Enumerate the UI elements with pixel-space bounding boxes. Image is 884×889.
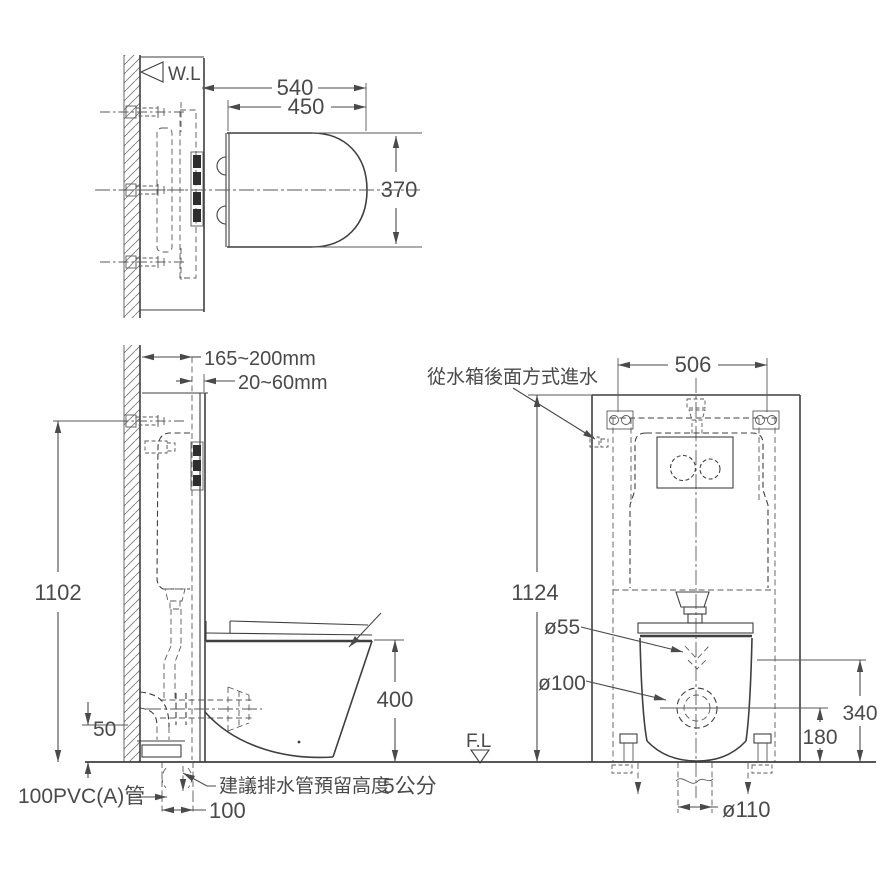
dim-180: 180 [802,708,837,762]
dim-1124: 1124 [511,395,592,762]
drain-elbow [137,692,193,796]
panel-thickness-label: 20~60mm [238,372,328,394]
dim-1102: 1102 [34,421,125,762]
wall-line-label: W.L [168,64,201,85]
seat-depth-label: 450 [288,94,325,119]
drain-center-height-label: 180 [802,726,837,749]
dim-panel-thickness: 20~60mm [176,372,328,394]
drain-wall-offset-label: 100 [209,798,246,823]
seat-width-label: 370 [381,177,418,202]
dim-400: 400 [374,640,413,762]
top-view: W.L 540 [95,55,422,318]
floor-line-label: F.L [466,731,491,752]
bowl-front-view [620,623,771,761]
dim-100: 100 [162,796,246,823]
drain-outlet [660,688,828,728]
concealed-cistern [145,433,203,700]
flush-connection [685,646,709,659]
front-view: 506 1124 從水箱後面方式進水 [427,352,878,822]
installation-drawing: W.L 540 [0,0,884,884]
rim-height-label: 340 [842,702,877,725]
drain-note: 建議排水管預留高度 5公分 [183,773,437,798]
anchor-bolts [612,763,772,794]
drain-riser-height-label: 50 [93,718,116,741]
wall-section [124,345,140,762]
side-view: 165~200mm 20~60mm 1102 [18,345,437,823]
inlet-note-label: 從水箱後面方式進水 [427,366,598,388]
floor-line-marker: F.L [466,731,491,763]
dim-506: 506 [618,352,767,412]
dim-drain-pipe: ø100 [538,672,666,700]
drain-pipe-callout: 100PVC(A)管 [18,785,167,808]
flush-button-large [671,456,696,481]
dim-450: 450 [228,94,366,131]
bowl-height-label: 400 [377,687,414,712]
inlet-callout: 從水箱後面方式進水 [427,366,608,447]
dim-50: 50 [82,702,128,778]
dim-flush-pipe: ø55 [544,616,683,652]
drain-note-value-label: 5公分 [383,775,437,798]
seat-lid [638,623,753,633]
concealed-tank [630,433,768,588]
wall-line-marker: W.L [141,62,201,85]
bowl-side-view [205,613,381,757]
toilet-installation-diagram: W.L 540 [0,0,884,884]
mounting-frame [607,411,779,762]
install-height-label: 1102 [34,580,81,605]
dim-wall-cavity: 165~200mm [142,348,316,370]
flush-button-small [700,459,720,479]
wall-cavity-label: 165~200mm [204,348,316,370]
dim-540: 540 [202,75,366,131]
seat-hinge-bump [217,157,226,175]
flush-pipe-dia-label: ø55 [544,616,580,639]
drain-note-label: 建議排水管預留高度 [219,775,390,797]
floor-drain-dia-label: ø110 [722,797,771,822]
drain-pipe-dia-label: ø100 [538,672,586,695]
frame-width-label: 506 [675,352,712,377]
seat-hinge-bump [217,206,226,224]
drain-pipe-label: 100PVC(A)管 [18,785,145,808]
flush-spud [146,687,262,731]
flush-pipe [676,592,709,623]
flush-button-panel [657,437,733,488]
floor-drain: ø110 [676,762,771,822]
frame-height-label: 1124 [511,580,558,605]
